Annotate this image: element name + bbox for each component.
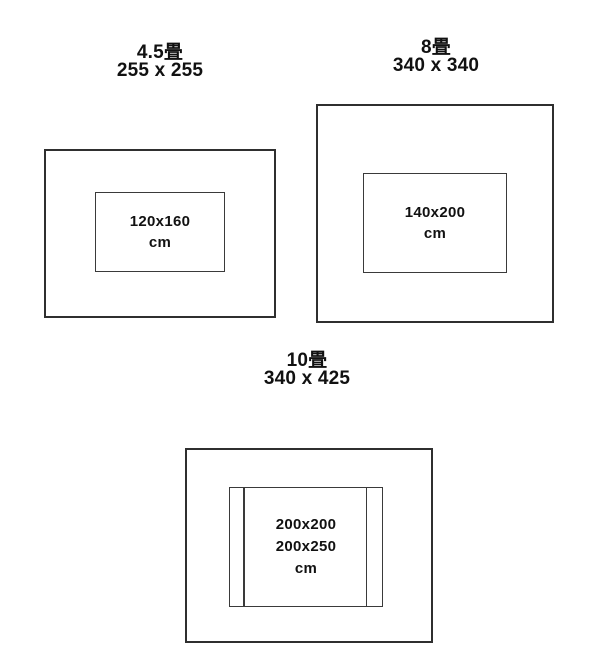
rug-size-label: 200x250: [276, 536, 337, 558]
rug-unit-label: cm: [149, 232, 171, 253]
room-title-4-5-tatami: 4.5畳 255 x 255: [60, 44, 260, 80]
rug-inner-size-marker-line-right: [366, 488, 368, 606]
rug-size-label: 200x200: [276, 514, 337, 536]
room-outline-10-tatami: 200x200 200x250 cm: [185, 448, 433, 643]
room-outline-8-tatami: 140x200 cm: [316, 104, 554, 323]
rug-size-guide-diagram: 4.5畳 255 x 255 120x160 cm 8畳 340 x 340 1…: [0, 0, 600, 650]
rug-unit-label: cm: [295, 558, 317, 580]
room-outline-4-5-tatami: 120x160 cm: [44, 149, 276, 318]
rug-unit-label: cm: [424, 223, 446, 244]
rug-size-label: 120x160: [130, 211, 191, 232]
rug-outline-140x200: 140x200 cm: [363, 173, 507, 273]
room-dimensions-label: 340 x 425: [207, 370, 407, 388]
room-dimensions-label: 340 x 340: [336, 57, 536, 75]
rug-outline-200x250: 200x200 200x250 cm: [229, 487, 383, 607]
room-title-8-tatami: 8畳 340 x 340: [336, 39, 536, 75]
room-title-10-tatami: 10畳 340 x 425: [207, 352, 407, 388]
rug-inner-size-marker-line-left: [243, 488, 245, 606]
rug-size-label: 140x200: [405, 202, 466, 223]
rug-outline-120x160: 120x160 cm: [95, 192, 225, 272]
room-dimensions-label: 255 x 255: [60, 62, 260, 80]
